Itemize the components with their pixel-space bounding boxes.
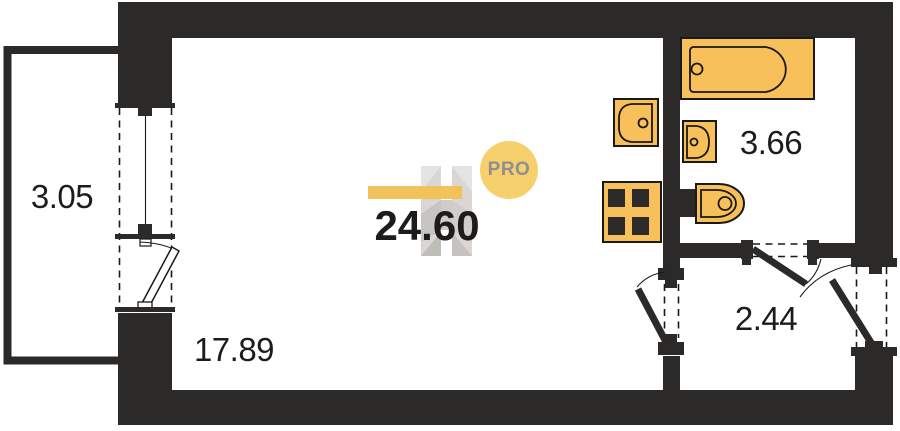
pro-badge: PRO (480, 141, 538, 199)
wall-interior-vertical-lower (663, 356, 680, 394)
wall-right-upper (855, 38, 893, 259)
wall-top (118, 2, 893, 38)
entrance-door-hinge (865, 341, 883, 354)
wall-left-upper (118, 38, 172, 103)
balcony-door-sill (115, 307, 175, 312)
balcony-area-label: 3.05 (31, 180, 93, 213)
wall-bottom (118, 390, 893, 425)
toilet-tank (680, 189, 696, 217)
kitchen-sink (614, 99, 658, 146)
floor-plan: PRO 3.05 17.89 3.66 2.44 24.60 (0, 0, 900, 431)
window-sill-middle (115, 234, 175, 239)
wall-right-lower (855, 356, 893, 425)
room-door-leaf (638, 289, 667, 344)
pro-badge-label: PRO (488, 159, 531, 181)
entrance-door-leaf (832, 280, 875, 349)
balcony-door (115, 242, 179, 312)
balcony-door-leaf (141, 247, 179, 309)
toilet (680, 184, 744, 223)
entrance-door (800, 258, 897, 356)
wall-bathroom-left (680, 243, 742, 258)
room-door (637, 268, 684, 355)
watermark-accent-bar (368, 186, 462, 199)
wall-bathroom-right (818, 243, 855, 258)
bathroom-sink (683, 121, 716, 162)
bathtub (681, 38, 814, 99)
wall-interior-vertical-upper (663, 38, 680, 268)
hallway-area-label: 2.44 (735, 302, 797, 335)
bathroom-door-leaf (753, 249, 806, 284)
bathroom-door (741, 240, 821, 284)
total-area-label: 24.60 (374, 205, 479, 247)
bathroom-area-label: 3.66 (740, 126, 802, 159)
living-room-area-label: 17.89 (194, 333, 274, 366)
stove (603, 182, 661, 242)
